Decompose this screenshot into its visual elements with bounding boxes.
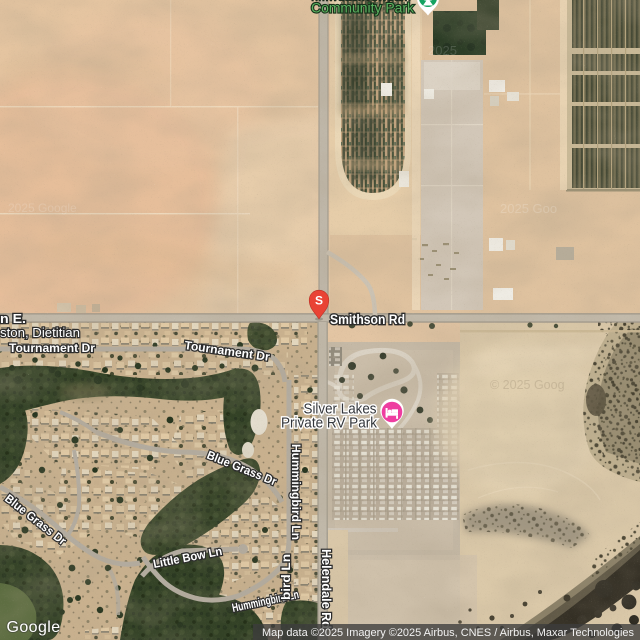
svg-text:© 2025 Goog: © 2025 Goog: [490, 378, 565, 392]
svg-text:Community Park: Community Park: [311, 1, 414, 16]
svg-text:2025: 2025: [428, 43, 457, 58]
svg-text:Tournament Dr: Tournament Dr: [9, 341, 95, 355]
svg-text:Helendale Rd: Helendale Rd: [319, 549, 333, 629]
svg-text:Smithson Rd: Smithson Rd: [330, 312, 405, 327]
svg-text:S: S: [315, 294, 323, 308]
svg-text:bird Ln: bird Ln: [279, 554, 293, 600]
svg-text:2025 Google: 2025 Google: [8, 201, 77, 215]
svg-text:2025 Goo: 2025 Goo: [500, 201, 557, 216]
svg-text:n E.: n E.: [0, 311, 26, 326]
svg-text:ston, Dietitian: ston, Dietitian: [0, 326, 80, 340]
svg-text:Hummingbird Ln: Hummingbird Ln: [289, 444, 303, 540]
svg-text:Google: Google: [7, 619, 61, 636]
svg-text:Private RV Park: Private RV Park: [281, 415, 377, 432]
svg-text:Map data ©2025 Imagery ©2025 A: Map data ©2025 Imagery ©2025 Airbus, CNE…: [262, 627, 634, 639]
